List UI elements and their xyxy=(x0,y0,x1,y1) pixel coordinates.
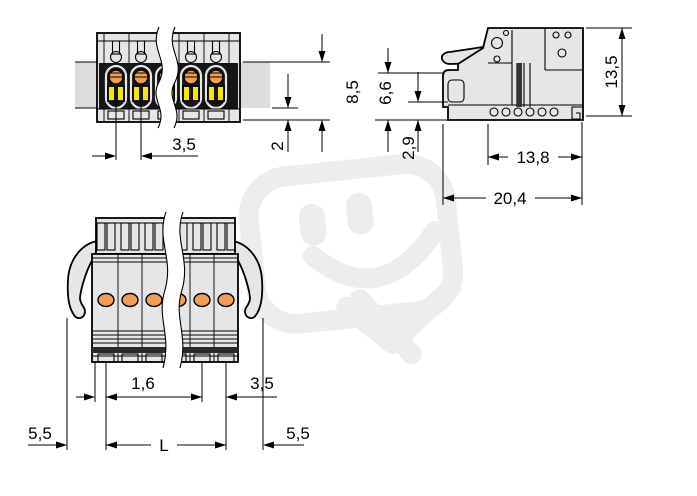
dim-plan-pitch: 3,5 xyxy=(191,374,277,401)
dim-label-plan-margin-right: 5,5 xyxy=(286,424,310,443)
dim-arrow xyxy=(415,91,422,102)
watermark-smile xyxy=(312,231,440,284)
dim-label-side-lever-height: 6,6 xyxy=(376,81,395,105)
technical-drawing-canvas: 8,5 2 3,5 xyxy=(0,0,697,496)
dim-arrow xyxy=(106,442,117,449)
dim-arrow xyxy=(319,120,326,131)
dim-label-plan-pitch: 3,5 xyxy=(250,374,274,393)
spring-slot xyxy=(517,63,522,107)
dim-label-side-total-depth: 20,4 xyxy=(493,189,526,208)
dim-arrow xyxy=(106,394,117,401)
watermark-logo xyxy=(245,160,462,370)
side-body-outline xyxy=(443,28,583,120)
dim-arrow xyxy=(619,28,626,39)
dim-label-side-body-depth: 13,8 xyxy=(516,148,549,167)
side-view: 13,5 6,6 2,9 13,8 20,4 xyxy=(375,28,632,208)
dim-arrow xyxy=(56,442,67,449)
dim-plan-length: L xyxy=(106,436,226,455)
dim-arrow xyxy=(385,62,392,73)
dim-label-front-rail-offset: 2 xyxy=(268,141,287,150)
dim-arrow xyxy=(226,394,237,401)
dim-side-foot-height: 2,9 xyxy=(399,72,448,160)
dim-arrow xyxy=(571,154,582,161)
front-view: 8,5 2 3,5 xyxy=(75,27,362,160)
dim-arrow xyxy=(319,51,326,62)
dim-arrow xyxy=(84,394,95,401)
dim-side-height: 13,5 xyxy=(586,28,632,116)
dim-side-total-depth: 20,4 xyxy=(443,124,582,208)
dim-front-rail-offset: 2 xyxy=(268,74,298,152)
dim-arrow xyxy=(263,442,274,449)
dim-arrow xyxy=(571,195,582,202)
dim-arrow xyxy=(285,97,292,108)
dim-arrow xyxy=(141,153,152,160)
dim-arrow xyxy=(488,154,499,161)
watermark-eye-left xyxy=(298,203,328,247)
dim-arrow xyxy=(415,120,422,131)
dim-arrow xyxy=(191,394,202,401)
dim-arrow xyxy=(105,153,116,160)
dim-arrow xyxy=(385,120,392,131)
dim-label-front-height: 8,5 xyxy=(343,80,362,104)
plan-view: 1,6 3,5 5,5 L 5,5 xyxy=(28,212,310,455)
dim-label-front-pitch: 3,5 xyxy=(172,135,196,154)
dim-arrow xyxy=(619,105,626,116)
watermark-eye-right xyxy=(345,192,375,236)
dim-label-side-height: 13,5 xyxy=(602,55,621,88)
dim-label-plan-length: L xyxy=(159,436,168,455)
dim-label-side-foot-height: 2,9 xyxy=(399,136,418,160)
drawing-sheet: 8,5 2 3,5 xyxy=(0,0,697,496)
dim-label-plan-edge-offset: 1,6 xyxy=(131,374,155,393)
dim-arrow xyxy=(285,120,292,131)
dim-arrow xyxy=(215,442,226,449)
dim-plan-margin-right: 5,5 xyxy=(263,424,310,449)
dim-plan-margin-left: 5,5 xyxy=(28,424,67,449)
dim-label-plan-margin-left: 5,5 xyxy=(28,424,52,443)
